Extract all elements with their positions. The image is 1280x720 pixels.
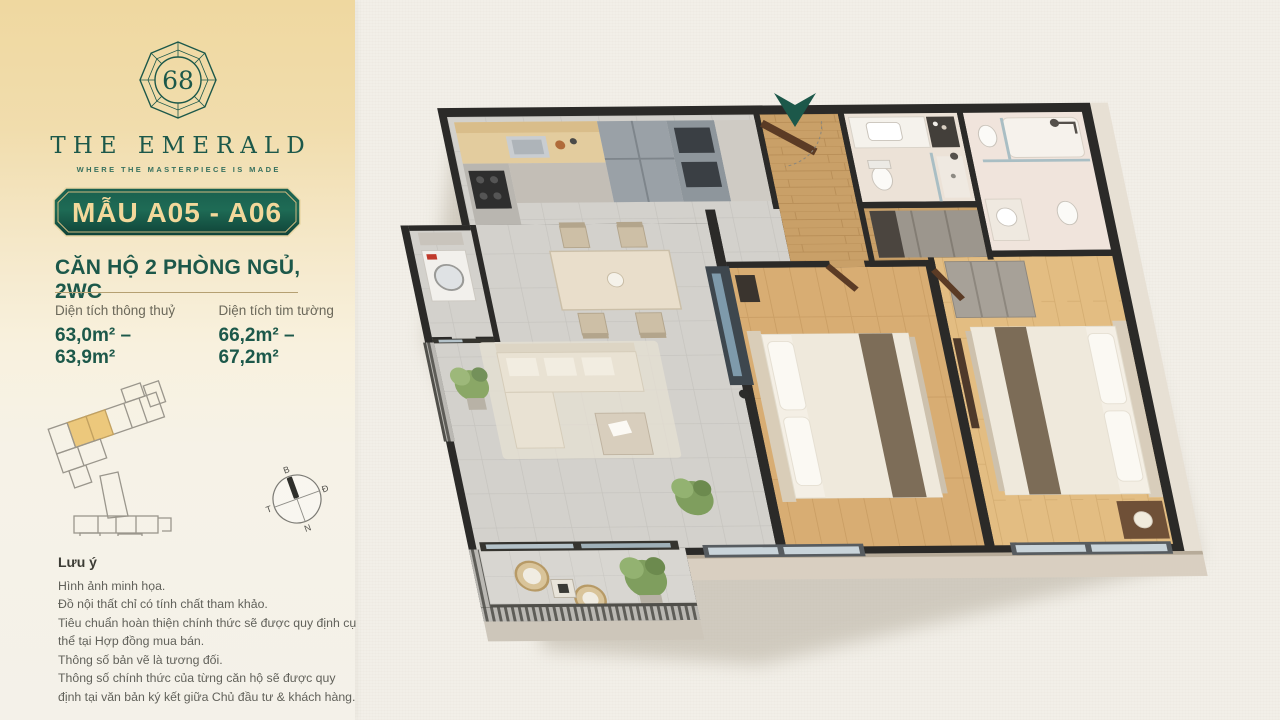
divider [55, 292, 298, 293]
compass-south-label: N [303, 522, 313, 534]
compass-north-label: B [282, 464, 291, 475]
compass-west-label: T [265, 503, 274, 514]
brand-tagline: WHERE THE MASTERPIECE IS MADE [0, 165, 355, 174]
info-sidebar: 68 THE EMERALD WHERE THE MASTERPIECE IS … [0, 0, 355, 720]
spec-net-area: Diện tích thông thuỷ 63,0m² – 63,9m² [55, 303, 192, 369]
spec-gross-area: Diện tích tim tường 66,2m² – 67,2m² [219, 303, 356, 369]
floor-plan-render [355, 0, 1280, 720]
site-plan-locator-diagram [38, 376, 188, 536]
logo-number: 68 [162, 66, 194, 95]
note-line: Đồ nội thất chỉ có tính chất tham khảo. [58, 595, 360, 613]
unit-type-title: CĂN HỘ 2 PHÒNG NGỦ, 2WC [55, 256, 345, 304]
model-badge: MẪU A05 - A06 [53, 187, 301, 237]
note-line: Tiêu chuẩn hoàn thiện chính thức sẽ được… [58, 614, 360, 651]
spec-value: 66,2m² – 67,2m² [219, 325, 356, 369]
brand-logo-block: 68 THE EMERALD WHERE THE MASTERPIECE IS … [0, 40, 355, 174]
brand-name: THE EMERALD [0, 133, 355, 159]
notes-title: Lưu ý [58, 554, 360, 570]
compass-east-label: Đ [320, 483, 330, 495]
note-line: Thông số bản vẽ là tương đối. [58, 651, 360, 669]
spec-value: 63,0m² – 63,9m² [55, 325, 192, 369]
emerald-gem-logo-icon: 68 [138, 40, 218, 120]
spec-label: Diện tích tim tường [219, 303, 356, 318]
model-badge-label: MẪU A05 - A06 [72, 197, 282, 228]
apartment-plan [374, 103, 1221, 642]
note-line: Thông số chính thức của từng căn hộ sẽ đ… [58, 669, 360, 706]
note-line: Hình ảnh minh họa. [58, 577, 360, 595]
area-specs: Diện tích thông thuỷ 63,0m² – 63,9m² Diệ… [55, 303, 355, 369]
disclaimer-notes: Lưu ý Hình ảnh minh họa. Đồ nội thất chỉ… [58, 554, 360, 706]
spec-label: Diện tích thông thuỷ [55, 303, 192, 318]
compass-icon: B Đ N T [260, 462, 334, 536]
